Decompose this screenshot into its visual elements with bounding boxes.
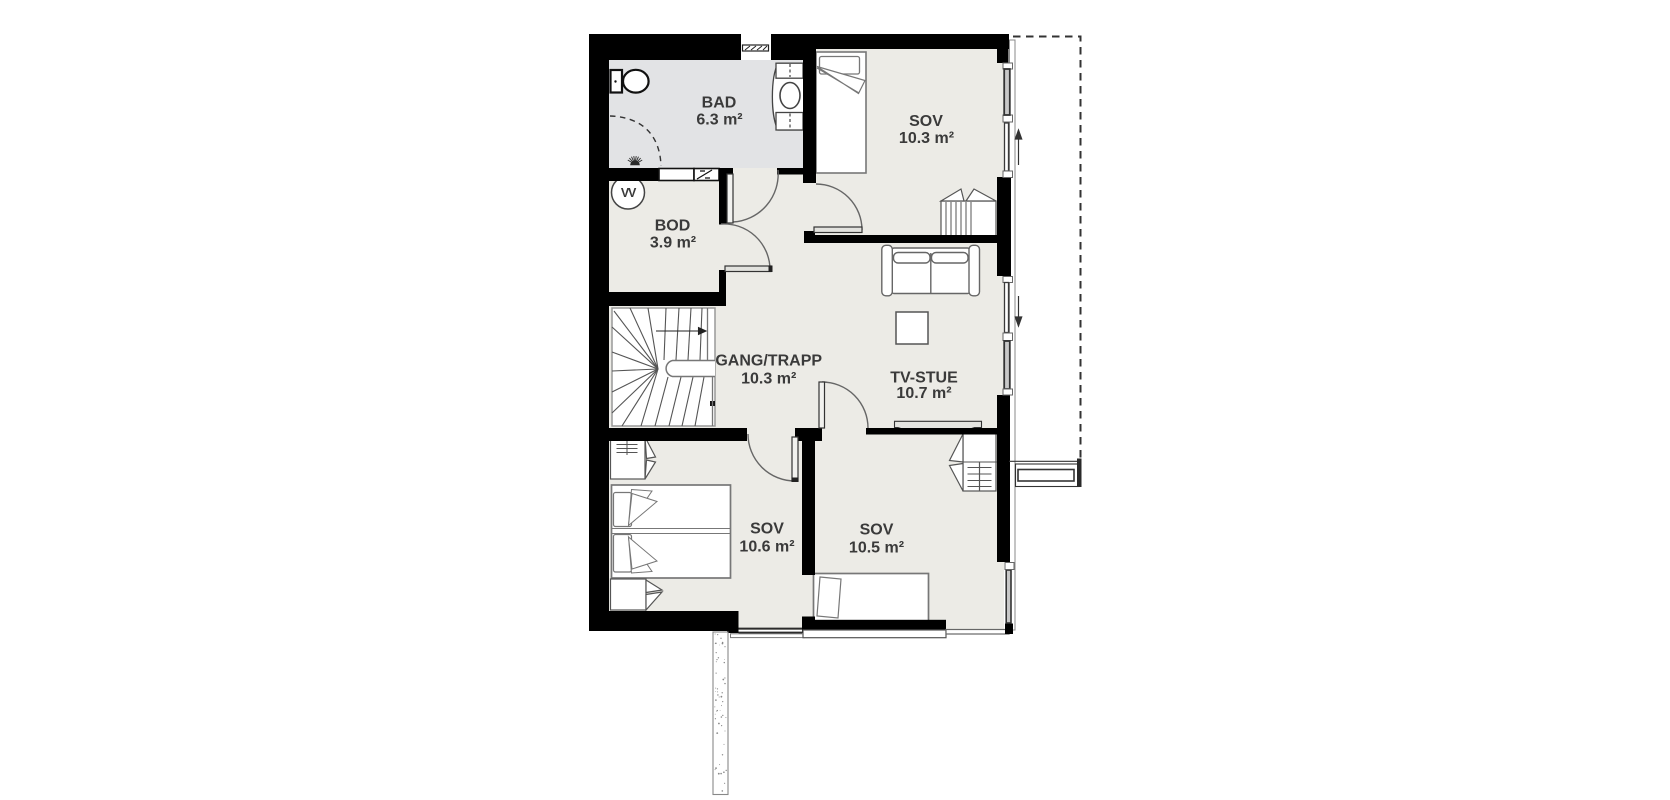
- svg-text:GANG/TRAPP: GANG/TRAPP: [715, 353, 822, 370]
- svg-text:SOV: SOV: [750, 521, 784, 538]
- svg-text:BOD: BOD: [655, 218, 691, 235]
- svg-text:6.3 m²: 6.3 m²: [696, 112, 742, 129]
- svg-text:3.9 m²: 3.9 m²: [650, 235, 696, 252]
- svg-text:10.3 m²: 10.3 m²: [899, 130, 954, 147]
- svg-text:10.3 m²: 10.3 m²: [741, 371, 796, 388]
- svg-text:10.5 m²: 10.5 m²: [849, 540, 904, 557]
- svg-text:10.7 m²: 10.7 m²: [896, 385, 951, 402]
- svg-text:SOV: SOV: [909, 113, 943, 130]
- svg-text:10.6 m²: 10.6 m²: [739, 539, 794, 556]
- svg-text:BAD: BAD: [702, 95, 737, 112]
- svg-text:VV: VV: [621, 186, 637, 200]
- svg-text:TV-STUE: TV-STUE: [890, 370, 958, 387]
- svg-text:SOV: SOV: [860, 522, 894, 539]
